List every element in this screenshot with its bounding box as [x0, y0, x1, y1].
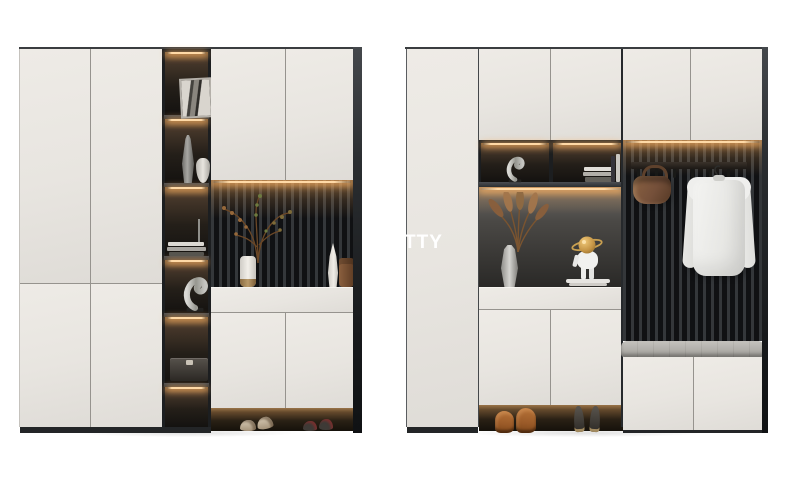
left-unit-side-panel: [353, 47, 362, 433]
shirt-collar: [713, 175, 725, 181]
wardrobe-door: [91, 49, 162, 283]
cabinet-door: [691, 49, 762, 140]
left-unit-plinth: [20, 427, 211, 433]
branch-arrangement: [216, 187, 296, 265]
white-shirt-on-hanger: [685, 164, 753, 282]
bench-door: [694, 357, 762, 430]
incense-stick: [198, 219, 200, 243]
right-cabinet-unit: [405, 47, 768, 433]
shelf-cell: [165, 387, 208, 427]
tall-door-plinth: [407, 427, 478, 433]
product-image: TTY: [0, 0, 800, 502]
leather-handbag: [633, 165, 673, 205]
swan-sculpture: [180, 269, 210, 313]
cabinet-door: [551, 310, 623, 405]
bench-plinth: [623, 430, 762, 433]
coat-hanging-panel: [623, 140, 762, 341]
branch-vase: [240, 256, 256, 287]
right-unit-side-panel: [762, 47, 768, 433]
beige-slippers: [240, 416, 274, 432]
pampas-grass: [482, 192, 554, 252]
cabinet-door: [211, 313, 285, 408]
shirt-body: [693, 180, 745, 276]
cabinet-door: [286, 49, 353, 180]
book-stack: [583, 167, 613, 182]
cabinet-door: [211, 49, 285, 180]
cabinet-door: [479, 310, 550, 405]
drawer-front: [211, 287, 353, 312]
bench-cushion: [621, 341, 764, 357]
led-strip: [625, 141, 760, 143]
coat-hook: [673, 169, 676, 178]
dark-flats: [303, 419, 333, 432]
cabinet-door: [286, 313, 353, 408]
left-wardrobe-doors: [20, 49, 162, 427]
left-unit-display-niche: [211, 180, 353, 287]
black-heels: [571, 406, 603, 433]
watermark-text: TTY: [404, 232, 443, 254]
astronaut-figurine: [565, 235, 611, 287]
swan-sculpture: [503, 151, 527, 183]
cabinet-door: [479, 49, 550, 140]
brown-ankle-boots: [495, 408, 539, 434]
drawer-front: [479, 287, 623, 309]
cabinet-door: [551, 49, 623, 140]
book-stack: [167, 242, 206, 256]
middle-upper-doors: [479, 49, 623, 140]
teardrop-ornament: [327, 243, 339, 287]
bench-cabinet: [623, 357, 762, 430]
handbag-body: [633, 176, 671, 204]
wardrobe-door: [20, 49, 90, 283]
wardrobe-door: [20, 284, 90, 427]
upright-books: [611, 154, 621, 182]
leather-clutch: [339, 258, 353, 287]
left-unit-upper-doors: [211, 49, 353, 180]
coat-section-upper-doors: [623, 49, 762, 140]
led-strip: [213, 181, 351, 183]
middle-lower-cabinet: [479, 287, 623, 405]
bench-door: [623, 357, 693, 430]
left-unit-lower-cabinet: [211, 287, 353, 408]
cabinet-door: [623, 49, 690, 140]
abstract-art-frame: [179, 77, 213, 119]
led-strip: [481, 188, 621, 190]
wardrobe-door: [91, 284, 162, 427]
left-cabinet-unit: [19, 47, 362, 433]
storage-box: [170, 358, 208, 381]
right-unit-display-niche: [479, 187, 623, 287]
